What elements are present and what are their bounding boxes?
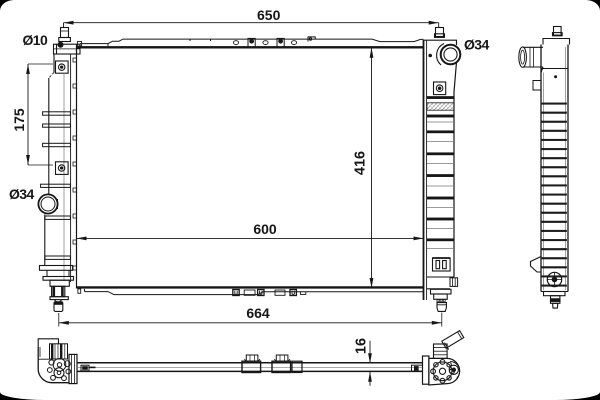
svg-text:416: 416 [352,151,368,175]
svg-text:175: 175 [11,108,27,132]
svg-text:Ø34: Ø34 [464,37,489,53]
svg-text:650: 650 [257,7,281,23]
svg-text:Ø10: Ø10 [23,32,48,48]
svg-text:Ø34: Ø34 [9,186,34,202]
svg-text:600: 600 [253,221,277,237]
svg-text:664: 664 [246,305,270,321]
svg-text:16: 16 [354,338,370,354]
